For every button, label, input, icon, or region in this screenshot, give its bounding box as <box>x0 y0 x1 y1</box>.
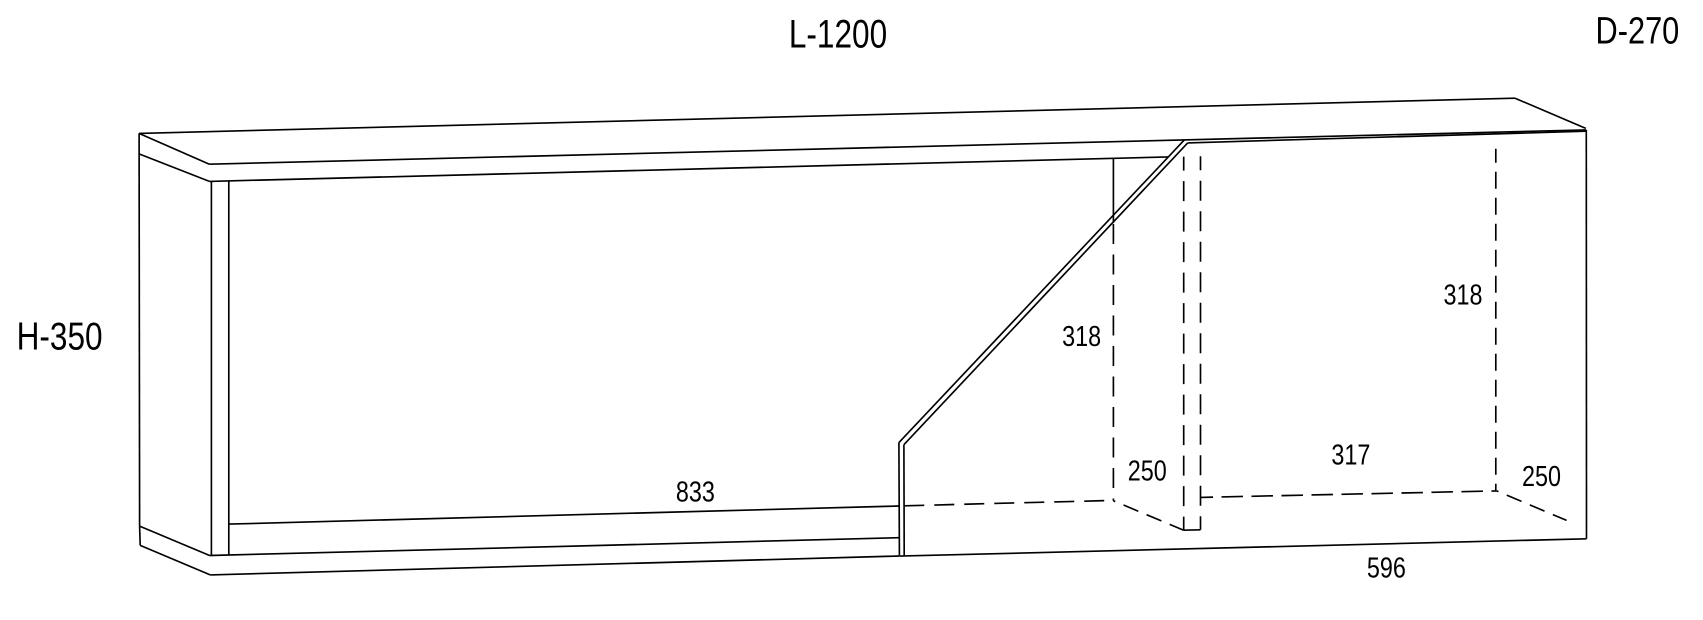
svg-text:318: 318 <box>1444 278 1483 311</box>
svg-text:L-1200: L-1200 <box>789 11 887 56</box>
svg-text:317: 317 <box>1331 438 1370 471</box>
svg-text:596: 596 <box>1367 551 1406 584</box>
svg-text:D-270: D-270 <box>1596 10 1680 52</box>
svg-text:318: 318 <box>1062 320 1101 353</box>
svg-text:833: 833 <box>676 475 715 508</box>
svg-text:H-350: H-350 <box>17 315 103 359</box>
svg-text:250: 250 <box>1522 460 1561 493</box>
svg-text:250: 250 <box>1128 454 1167 487</box>
